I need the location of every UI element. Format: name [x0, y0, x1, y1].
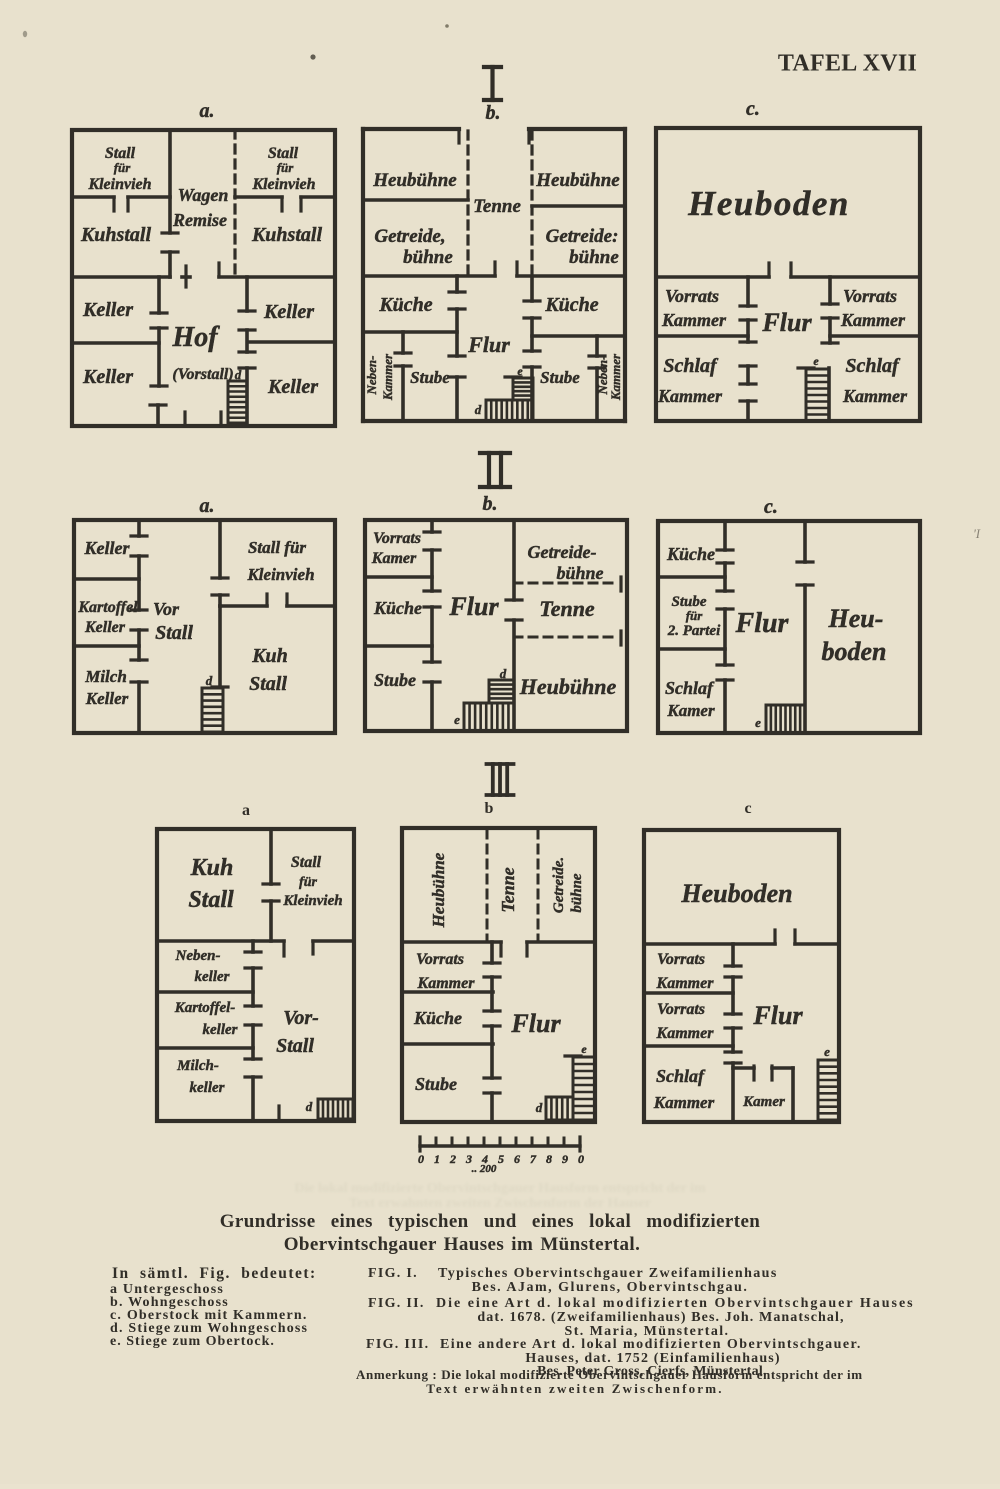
svg-text:b: b — [485, 800, 494, 817]
svg-text:Küche: Küche — [666, 544, 715, 564]
svg-text:Kuh: Kuh — [190, 855, 234, 881]
svg-text:Stube: Stube — [415, 1074, 457, 1094]
svg-text:Remise: Remise — [172, 210, 227, 230]
svg-text:'I: 'I — [973, 526, 981, 541]
svg-text:e: e — [517, 364, 523, 378]
svg-text:Kamer: Kamer — [742, 1094, 785, 1110]
svg-text:Keller: Keller — [267, 376, 318, 398]
svg-text:Kammer: Kammer — [842, 386, 908, 406]
svg-text:Schlaf: Schlaf — [845, 355, 901, 377]
svg-text:Kamer: Kamer — [371, 550, 417, 567]
svg-text:Flur: Flur — [467, 332, 510, 357]
svg-text:Milch: Milch — [84, 667, 127, 686]
svg-text:Schlaf: Schlaf — [663, 355, 719, 377]
svg-text:FIG. III.: FIG. III. — [366, 1337, 429, 1352]
svg-text:Die lokal modifizierte Obervin: Die lokal modifizierte Obervintschgauer … — [294, 1181, 706, 1196]
svg-text:c.: c. — [764, 496, 778, 518]
svg-text:für: für — [299, 875, 317, 890]
svg-text:Stall für: Stall für — [248, 538, 306, 557]
svg-text:Heubühne: Heubühne — [519, 674, 617, 699]
svg-text:Küche: Küche — [544, 294, 598, 316]
svg-text:5: 5 — [498, 1152, 504, 1166]
svg-text:Getreide,: Getreide, — [374, 226, 445, 247]
svg-text:e: e — [454, 712, 460, 727]
svg-text:Keller: Keller — [85, 689, 129, 708]
svg-text:Kammer: Kammer — [608, 353, 623, 401]
svg-text:Flur: Flur — [448, 592, 499, 621]
svg-text:d: d — [206, 673, 213, 688]
svg-text:.. 200: .. 200 — [472, 1163, 497, 1175]
svg-text:Getreide:: Getreide: — [546, 226, 619, 247]
svg-text:Keller: Keller — [84, 619, 126, 636]
svg-text:d: d — [306, 1099, 313, 1114]
svg-text:Tenne: Tenne — [498, 867, 518, 912]
svg-text:(Vorstall): (Vorstall) — [172, 366, 233, 383]
svg-text:Keller: Keller — [263, 301, 314, 323]
svg-text:Kammer: Kammer — [656, 975, 715, 992]
svg-text:für: für — [686, 608, 704, 623]
svg-text:Vorrats: Vorrats — [665, 286, 719, 306]
svg-text:e: e — [755, 715, 761, 730]
svg-text:FIG. I.: FIG. I. — [368, 1266, 418, 1281]
svg-text:a.: a. — [200, 100, 215, 122]
svg-text:Flur: Flur — [510, 1009, 561, 1038]
svg-text:keller: keller — [195, 969, 230, 985]
svg-text:Küche: Küche — [378, 294, 432, 316]
svg-text:bühne: bühne — [556, 563, 603, 583]
svg-text:Küche: Küche — [373, 598, 422, 618]
svg-text:c: c — [744, 800, 751, 817]
svg-text:Schlaf: Schlaf — [656, 1066, 706, 1086]
svg-text:9: 9 — [562, 1152, 568, 1166]
svg-text:0: 0 — [578, 1152, 584, 1166]
svg-text:dat. 1678. (Zweifamilienhaus): dat. 1678. (Zweifamilienhaus) Bes. Joh. … — [477, 1310, 844, 1325]
svg-text:Kleinvieh: Kleinvieh — [282, 893, 342, 909]
svg-text:Tenne: Tenne — [473, 196, 521, 217]
svg-text:d: d — [235, 367, 242, 382]
svg-text:Text erwähnten zweiten Zwische: Text erwähnten zweiten Zwischenform. — [426, 1381, 724, 1396]
svg-text:Stall: Stall — [155, 622, 193, 644]
svg-text:b.: b. — [486, 102, 501, 124]
svg-text:Stube: Stube — [374, 670, 416, 690]
svg-text:Kuhstall: Kuhstall — [80, 224, 151, 246]
svg-text:Vorrats: Vorrats — [657, 1001, 705, 1018]
svg-text:Stall: Stall — [276, 1035, 314, 1057]
svg-text:Kleinvieh: Kleinvieh — [87, 176, 151, 193]
svg-text:Vorrats: Vorrats — [373, 530, 421, 547]
svg-text:b.: b. — [483, 493, 498, 515]
svg-text:d: d — [500, 666, 507, 681]
svg-text:In sämtl. Fig. bedeutet:: In sämtl. Fig. bedeutet: — [112, 1265, 317, 1282]
svg-text:Hof: Hof — [171, 322, 220, 353]
svg-text:a.: a. — [200, 495, 215, 517]
svg-text:Neben-: Neben- — [364, 356, 379, 396]
svg-text:für: für — [114, 160, 132, 175]
svg-text:bühne: bühne — [403, 247, 453, 268]
svg-text:Heubühne: Heubühne — [535, 170, 620, 191]
svg-text:Küche: Küche — [413, 1008, 462, 1028]
svg-text:Vor: Vor — [153, 599, 180, 619]
svg-text:1: 1 — [434, 1152, 440, 1166]
svg-text:0: 0 — [418, 1152, 424, 1166]
svg-text:Keller: Keller — [82, 366, 133, 388]
svg-text:Kammer: Kammer — [656, 1025, 715, 1042]
svg-text:bühne: bühne — [569, 873, 585, 913]
svg-text:bühne: bühne — [569, 247, 619, 268]
svg-text:Anmerkung : Die lokal modifizi: Anmerkung : Die lokal modifizierte Oberv… — [356, 1367, 863, 1382]
svg-text:Vorrats: Vorrats — [843, 286, 897, 306]
svg-text:6: 6 — [514, 1152, 520, 1166]
svg-text:8: 8 — [546, 1152, 552, 1166]
svg-text:e: e — [813, 354, 819, 368]
svg-text:e: e — [824, 1044, 830, 1059]
svg-text:d: d — [536, 1100, 543, 1115]
svg-text:e. Stiege zum Obertock.: e. Stiege zum Obertock. — [110, 1334, 275, 1349]
svg-text:Stube: Stube — [410, 368, 450, 387]
svg-text:Heu-: Heu- — [828, 604, 884, 633]
svg-text:Flur: Flur — [752, 1001, 803, 1030]
svg-text:Flur: Flur — [761, 308, 812, 337]
svg-text:Vor-: Vor- — [283, 1007, 319, 1029]
svg-text:Kuh: Kuh — [251, 645, 288, 667]
svg-text:Typisches Obervintschgauer Zwe: Typisches Obervintschgauer Zweifamilienh… — [438, 1266, 778, 1281]
svg-text:Heubühne: Heubühne — [372, 170, 457, 191]
svg-text:für: für — [277, 160, 295, 175]
svg-text:TAFEL XVII: TAFEL XVII — [778, 51, 917, 77]
svg-text:keller: keller — [203, 1022, 238, 1038]
svg-text:Die eine Art d. lokal modifizi: Die eine Art d. lokal modifizierten Ober… — [436, 1296, 915, 1311]
svg-text:Kuhstall: Kuhstall — [251, 224, 322, 246]
svg-text:Keller: Keller — [84, 538, 131, 558]
svg-text:Getreide.: Getreide. — [551, 857, 567, 913]
svg-text:2: 2 — [449, 1152, 456, 1166]
svg-text:c.: c. — [746, 98, 760, 120]
svg-text:Text erwahnten zweiten Zwische: Text erwahnten zweiten Zwischenform der … — [349, 1196, 651, 1211]
svg-text:keller: keller — [190, 1080, 225, 1096]
svg-text:e: e — [581, 1042, 587, 1056]
svg-text:Kammer: Kammer — [380, 353, 395, 401]
svg-text:Kammer: Kammer — [840, 310, 906, 330]
svg-text:Schlaf: Schlaf — [665, 678, 715, 698]
svg-text:Stall: Stall — [188, 887, 234, 913]
svg-text:Vorrats: Vorrats — [416, 951, 464, 968]
svg-text:Kartoffel-: Kartoffel- — [174, 1000, 236, 1016]
svg-text:Stall: Stall — [249, 673, 287, 695]
svg-text:Kleinvieh: Kleinvieh — [251, 176, 315, 193]
svg-text:a: a — [242, 802, 250, 819]
svg-text:FIG. II.: FIG. II. — [368, 1296, 425, 1311]
svg-text:Kleinvieh: Kleinvieh — [246, 565, 314, 584]
svg-text:Flur: Flur — [735, 608, 790, 639]
svg-text:Kammer: Kammer — [653, 1093, 715, 1112]
svg-text:Milch-: Milch- — [176, 1058, 219, 1074]
svg-text:Stall: Stall — [291, 854, 322, 871]
svg-text:2. Partei: 2. Partei — [667, 623, 721, 639]
svg-text:Obervintschgauer Hauses im Mün: Obervintschgauer Hauses im Münstertal. — [284, 1234, 641, 1255]
svg-text:Vorrats: Vorrats — [657, 951, 705, 968]
svg-text:d: d — [475, 402, 482, 417]
svg-text:Grundrisse eines typischen und: Grundrisse eines typischen und eines lok… — [220, 1211, 761, 1232]
svg-text:Neben-: Neben- — [175, 948, 221, 964]
svg-text:Bes. AJam, Glurens, Obervintsc: Bes. AJam, Glurens, Obervintschgau. — [472, 1280, 749, 1295]
svg-text:Eine andere Art d. lokal modif: Eine andere Art d. lokal modifizierten O… — [440, 1337, 862, 1352]
svg-text:Heuboden: Heuboden — [687, 184, 850, 223]
svg-text:Kammer: Kammer — [661, 310, 727, 330]
svg-text:Tenne: Tenne — [539, 596, 595, 621]
svg-text:Kammer: Kammer — [657, 386, 723, 406]
svg-text:Heuboden: Heuboden — [680, 879, 792, 908]
svg-text:Stube: Stube — [540, 368, 580, 387]
svg-text:Heubühne: Heubühne — [429, 852, 448, 928]
svg-text:Keller: Keller — [82, 299, 133, 321]
svg-text:Kammer: Kammer — [417, 975, 476, 992]
svg-text:Wagen: Wagen — [178, 185, 229, 205]
svg-text:Getreide-: Getreide- — [528, 542, 597, 562]
svg-text:Kamer: Kamer — [666, 701, 715, 720]
svg-text:Kartoffel: Kartoffel — [77, 599, 138, 616]
svg-text:7: 7 — [530, 1152, 537, 1166]
svg-text:boden: boden — [822, 637, 887, 666]
